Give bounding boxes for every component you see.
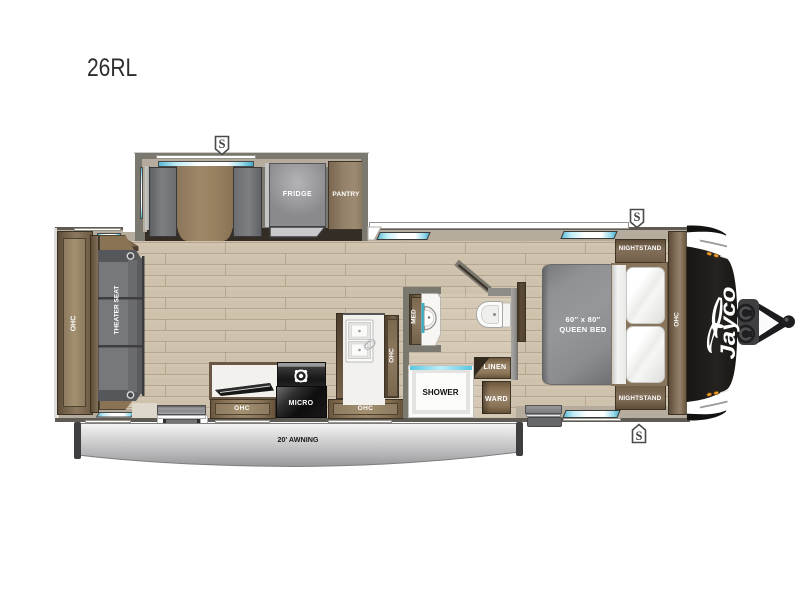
svg-text:S: S [636, 429, 643, 443]
svg-text:S: S [219, 137, 226, 151]
svg-text:S: S [634, 210, 641, 224]
svg-text:Jayco: Jayco [717, 286, 740, 359]
svg-text:20' AWNING: 20' AWNING [278, 435, 319, 444]
